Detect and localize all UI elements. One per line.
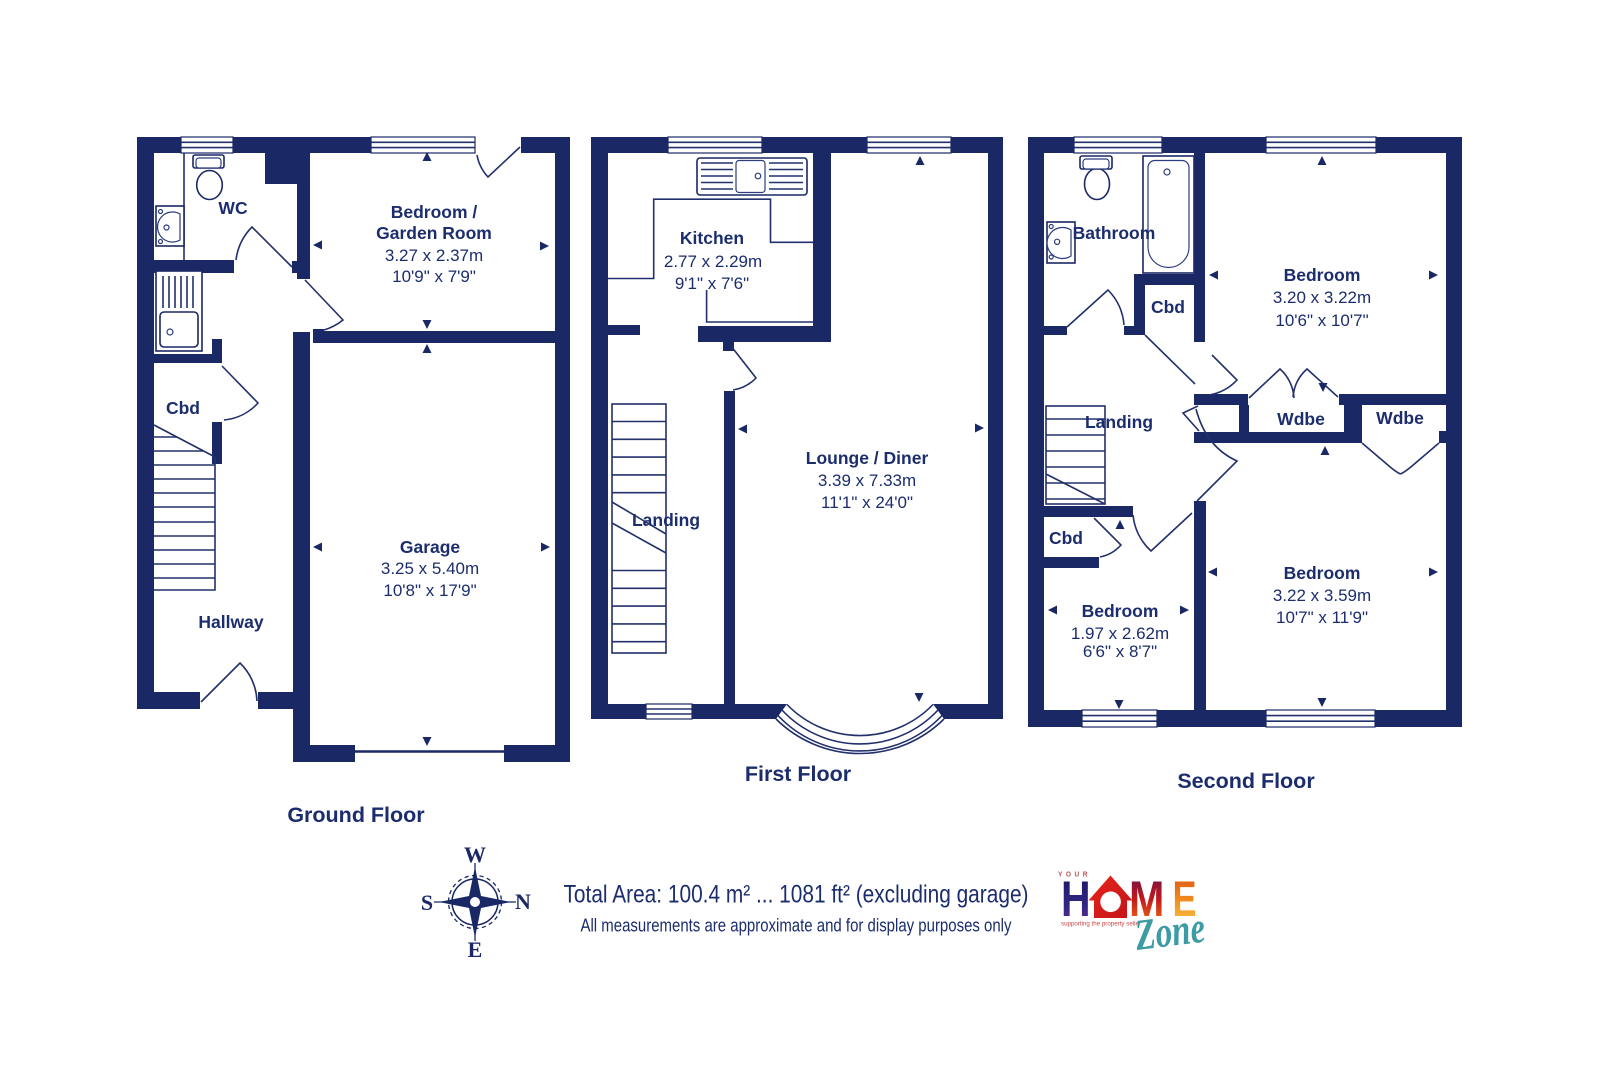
svg-text:supporting the property seller: supporting the property seller	[1061, 921, 1141, 928]
svg-text:First Floor: First Floor	[745, 762, 852, 786]
svg-text:Total Area: 100.4 m² ... 1081: Total Area: 100.4 m² ... 1081 ft² (exclu…	[564, 881, 1029, 909]
svg-text:1.97 x 2.62m: 1.97 x 2.62m	[1071, 624, 1169, 643]
svg-text:3.25 x 5.40m: 3.25 x 5.40m	[381, 559, 479, 578]
svg-text:W: W	[464, 842, 486, 867]
svg-text:2.77 x 2.29m: 2.77 x 2.29m	[664, 252, 762, 271]
svg-text:Cbd: Cbd	[1049, 528, 1083, 548]
svg-text:Cbd: Cbd	[1151, 297, 1185, 317]
svg-text:Bedroom: Bedroom	[1284, 265, 1361, 285]
svg-text:9'1" x 7'6": 9'1" x 7'6"	[675, 274, 749, 293]
svg-text:10'7" x 11'9": 10'7" x 11'9"	[1276, 608, 1368, 627]
svg-text:All measurements are approxima: All measurements are approximate and for…	[581, 915, 1013, 936]
svg-text:Hallway: Hallway	[198, 612, 263, 632]
svg-text:10'8" x 17'9": 10'8" x 17'9"	[383, 581, 476, 600]
svg-text:Kitchen: Kitchen	[680, 228, 744, 248]
svg-text:S: S	[421, 890, 433, 915]
svg-text:E: E	[468, 937, 483, 962]
svg-text:3.39 x 7.33m: 3.39 x 7.33m	[818, 471, 916, 490]
svg-text:10'6" x 10'7": 10'6" x 10'7"	[1275, 311, 1368, 330]
svg-text:10'9" x 7'9": 10'9" x 7'9"	[392, 267, 476, 286]
svg-text:Wdbe: Wdbe	[1376, 408, 1424, 428]
svg-text:6'6" x 8'7": 6'6" x 8'7"	[1083, 642, 1157, 661]
svg-text:Lounge / Diner: Lounge / Diner	[806, 448, 929, 468]
svg-text:Bedroom: Bedroom	[1284, 563, 1361, 583]
svg-text:Garage: Garage	[400, 537, 461, 557]
svg-text:N: N	[515, 889, 531, 914]
svg-text:Landing: Landing	[632, 510, 700, 530]
svg-text:Wdbe: Wdbe	[1277, 409, 1325, 429]
svg-text:Landing: Landing	[1085, 412, 1153, 432]
svg-text:11'1" x 24'0": 11'1" x 24'0"	[821, 493, 913, 512]
svg-text:Bedroom: Bedroom	[1082, 601, 1159, 621]
svg-text:3.22 x 3.59m: 3.22 x 3.59m	[1273, 586, 1371, 605]
svg-text:Bathroom: Bathroom	[1073, 223, 1156, 243]
svg-text:Cbd: Cbd	[166, 398, 200, 418]
svg-text:3.20 x 3.22m: 3.20 x 3.22m	[1273, 288, 1371, 307]
svg-text:H: H	[1061, 871, 1091, 927]
svg-text:Garden Room: Garden Room	[376, 223, 492, 243]
svg-text:Bedroom /: Bedroom /	[391, 202, 478, 222]
svg-text:Ground Floor: Ground Floor	[287, 803, 425, 827]
svg-text:Zone: Zone	[1131, 903, 1207, 960]
svg-text:WC: WC	[218, 198, 248, 218]
svg-text:3.27 x 2.37m: 3.27 x 2.37m	[385, 246, 483, 265]
svg-text:Second Floor: Second Floor	[1177, 769, 1315, 793]
